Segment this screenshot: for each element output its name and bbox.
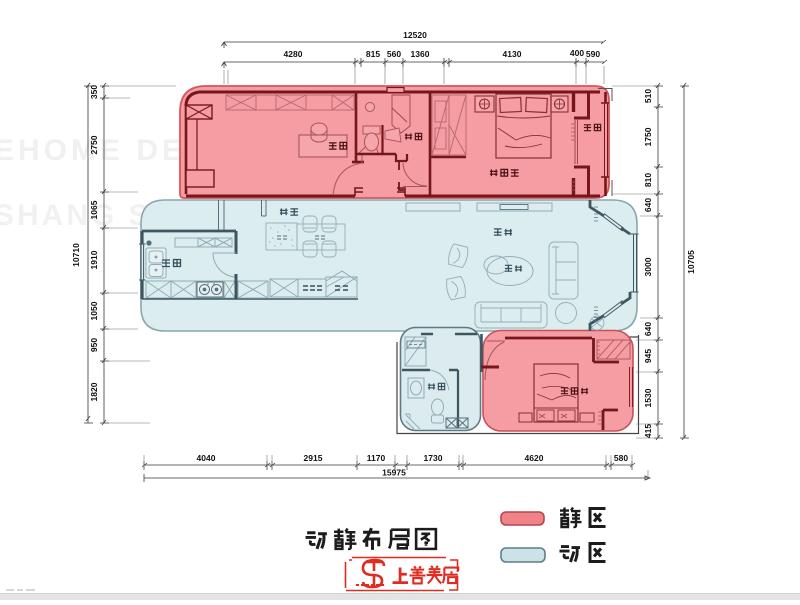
svg-text:1065: 1065 <box>89 200 99 219</box>
svg-text:2915: 2915 <box>304 453 323 463</box>
svg-text:1910: 1910 <box>89 250 99 269</box>
svg-text:810: 810 <box>643 173 653 187</box>
svg-text:4280: 4280 <box>284 49 303 59</box>
svg-text:1530: 1530 <box>643 388 653 407</box>
svg-text:10710: 10710 <box>71 243 81 267</box>
svg-text:1360: 1360 <box>411 49 430 59</box>
svg-text:3000: 3000 <box>643 257 653 276</box>
svg-text:350: 350 <box>89 85 99 99</box>
svg-text:1750: 1750 <box>643 127 653 146</box>
svg-text:4040: 4040 <box>197 453 216 463</box>
svg-text:1170: 1170 <box>367 453 386 463</box>
svg-text:945: 945 <box>643 349 653 363</box>
svg-text:1820: 1820 <box>89 382 99 401</box>
svg-text:12520: 12520 <box>403 30 427 40</box>
svg-text:415: 415 <box>643 424 653 438</box>
svg-text:950: 950 <box>89 338 99 352</box>
svg-text:590: 590 <box>586 49 600 59</box>
svg-text:2750: 2750 <box>89 135 99 154</box>
svg-text:640: 640 <box>643 322 653 336</box>
svg-text:4130: 4130 <box>503 49 522 59</box>
svg-text:560: 560 <box>387 49 401 59</box>
svg-text:1730: 1730 <box>424 453 443 463</box>
svg-text:1050: 1050 <box>89 301 99 320</box>
svg-text:815: 815 <box>366 49 380 59</box>
svg-text:4620: 4620 <box>525 453 544 463</box>
svg-text:510: 510 <box>643 89 653 103</box>
svg-text:580: 580 <box>614 453 628 463</box>
svg-text:10705: 10705 <box>686 250 696 274</box>
svg-text:15975: 15975 <box>382 468 406 478</box>
svg-text:640: 640 <box>643 198 653 212</box>
svg-text:400: 400 <box>570 48 584 58</box>
